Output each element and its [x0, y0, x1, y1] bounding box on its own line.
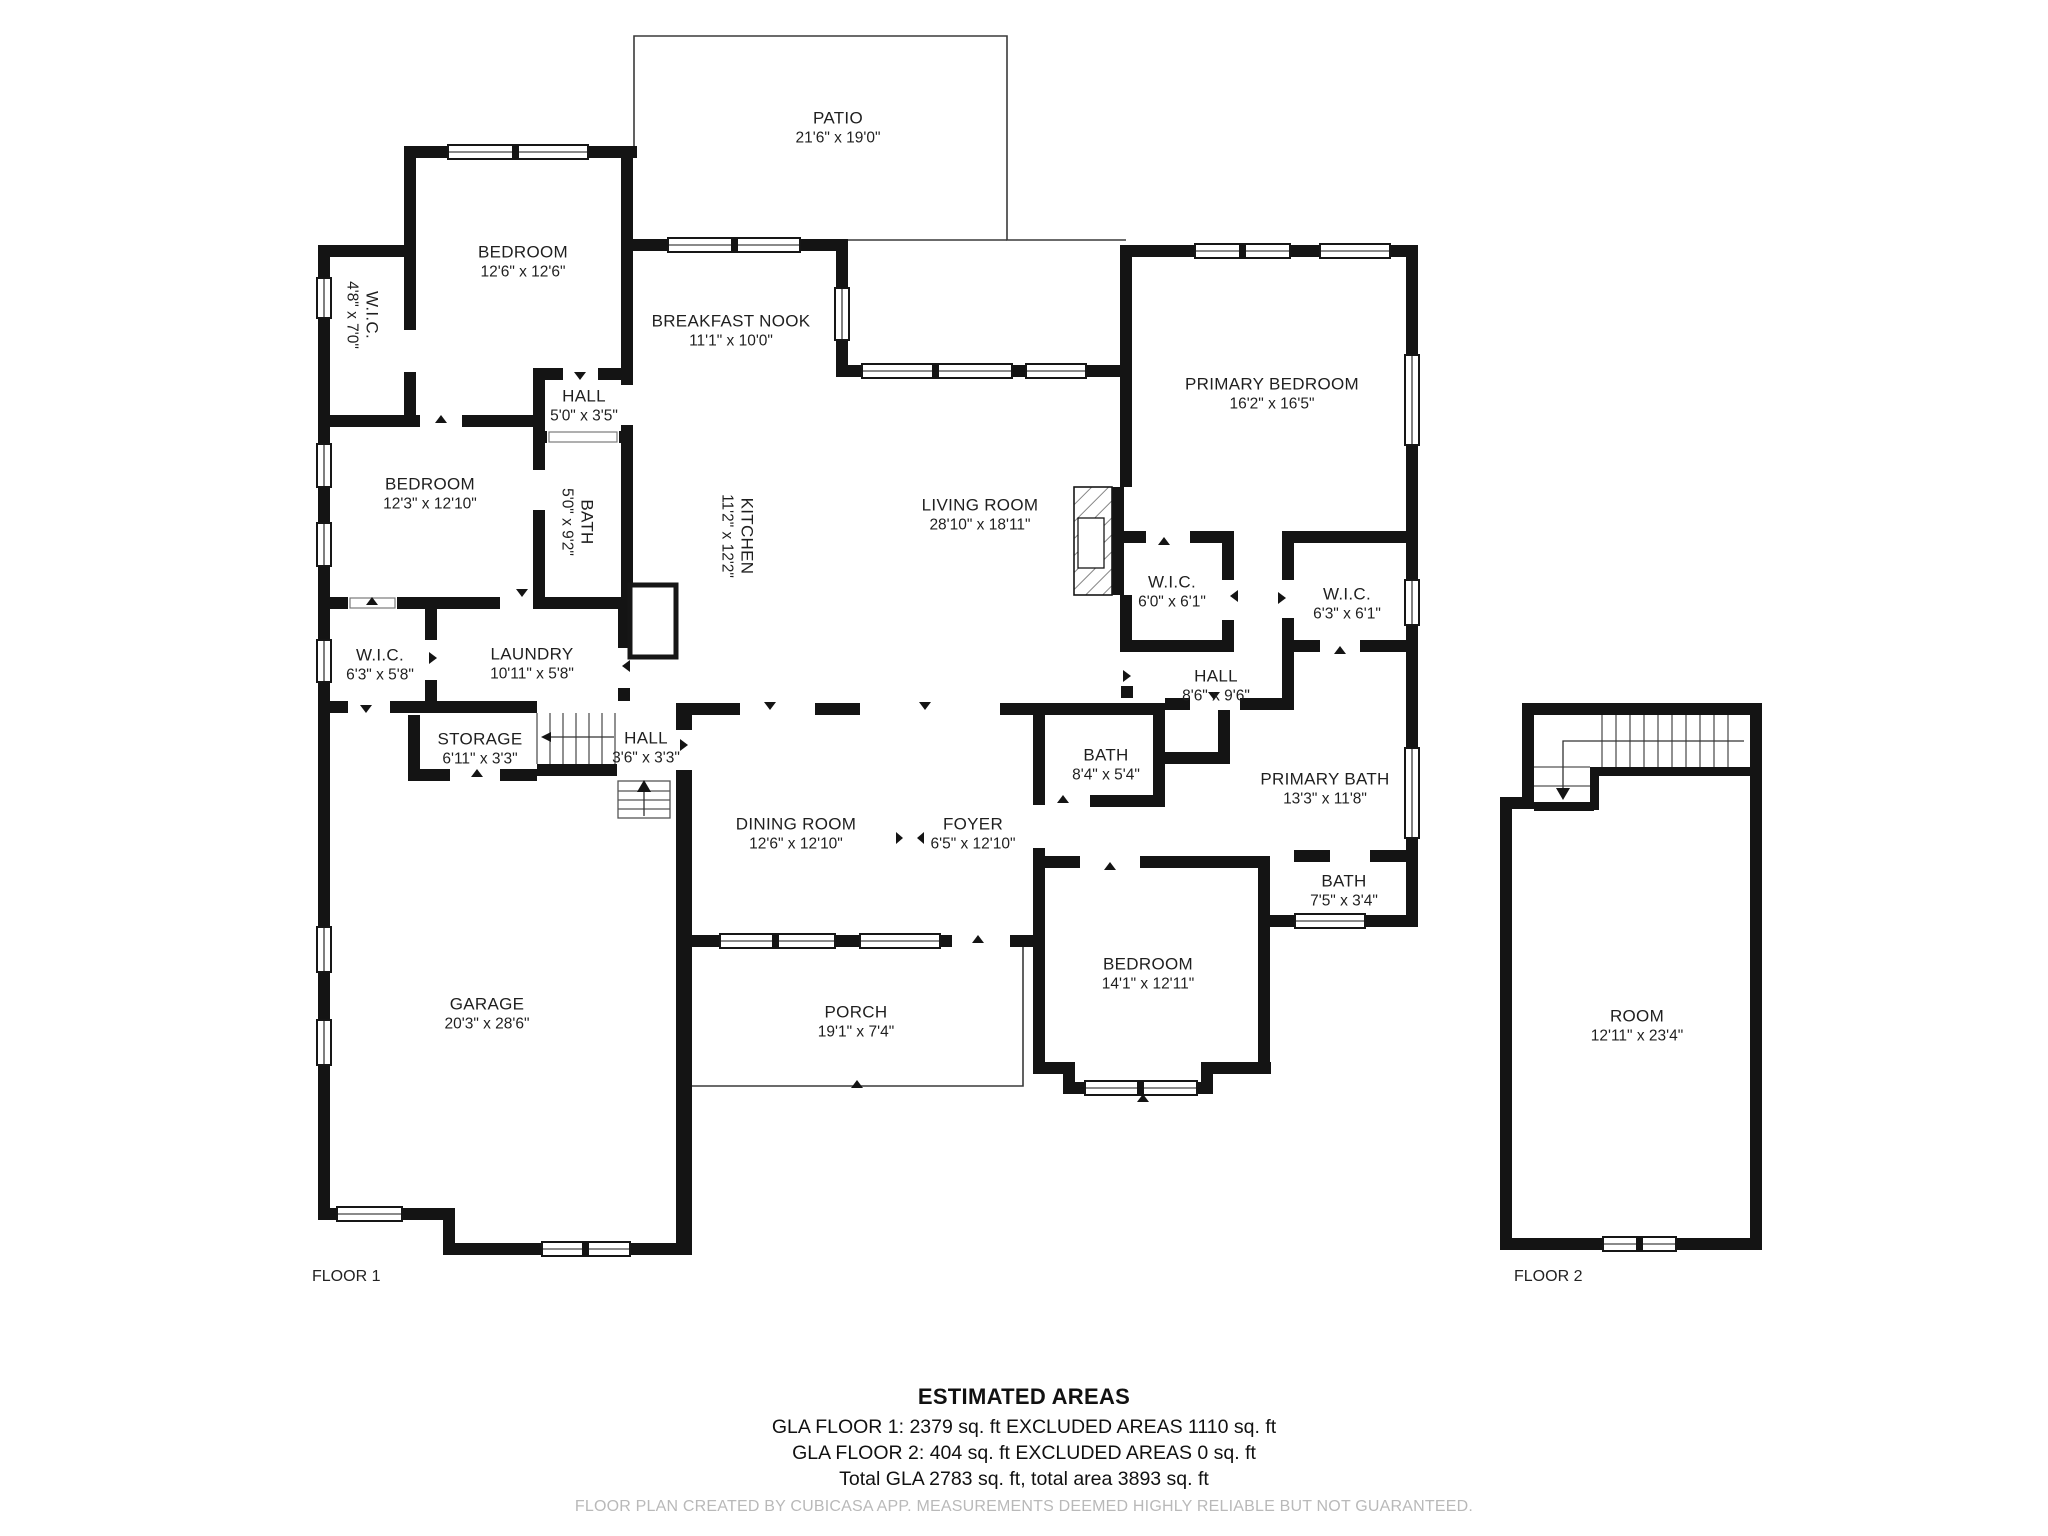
fireplace — [1074, 487, 1112, 595]
room-label-bath-3: BATH7'5" x 3'4" — [1310, 871, 1378, 912]
room-label-wic-3: W.I.C.6'3" x 6'1" — [1313, 584, 1381, 625]
disclaimer-note: FLOOR PLAN CREATED BY CUBICASA APP. MEAS… — [0, 1498, 2048, 1516]
room-label-patio: PATIO21'6" x 19'0" — [795, 108, 880, 149]
floor2-stairs — [1534, 715, 1744, 792]
floor-plan-page: PATIO21'6" x 19'0" BEDROOM12'6" x 12'6" … — [0, 0, 2048, 1536]
room-label-hall-1: HALL5'0" x 3'5" — [550, 386, 618, 427]
room-label-bedroom-2: BEDROOM12'3" x 12'10" — [383, 474, 477, 515]
room-label-kitchen: KITCHEN11'2" x 12'2" — [717, 494, 758, 578]
room-label-garage: GARAGE20'3" x 28'6" — [444, 994, 529, 1035]
room-label-wic-4: W.I.C.6'3" x 5'8" — [346, 645, 414, 686]
gla-floor2-line: GLA FLOOR 2: 404 sq. ft EXCLUDED AREAS 0… — [0, 1440, 2048, 1466]
room-label-porch: PORCH19'1" x 7'4" — [818, 1002, 894, 1043]
room-label-bedroom-3: BEDROOM14'1" x 12'11" — [1102, 954, 1194, 995]
floor2-stairs-arrow — [1556, 788, 1570, 800]
kitchen-island — [630, 585, 676, 657]
floor2-label: FLOOR 2 — [1514, 1268, 1582, 1286]
room-label-bath-1: BATH5'0" x 9'2" — [557, 488, 598, 556]
room-label-wic-2: W.I.C.6'0" x 6'1" — [1138, 572, 1206, 613]
floor-plan-drawing — [0, 0, 2048, 1536]
room-label-storage: STORAGE6'11" x 3'3" — [438, 729, 523, 770]
room-label-wic-1: W.I.C.4'8" x 7'0" — [342, 281, 383, 349]
room-label-breakfast-nook: BREAKFAST NOOK11'1" x 10'0" — [652, 311, 811, 352]
room-label-bath-2: BATH8'4" x 5'4" — [1072, 745, 1140, 786]
estimated-areas-heading: ESTIMATED AREAS — [0, 1384, 2048, 1410]
floor1-label: FLOOR 1 — [312, 1268, 380, 1286]
room-label-bedroom-1: BEDROOM12'6" x 12'6" — [478, 242, 568, 283]
floor2-walls — [1500, 703, 1762, 1250]
room-label-room-f2: ROOM12'11" x 23'4" — [1591, 1006, 1683, 1047]
room-label-primary-bedroom: PRIMARY BEDROOM16'2" x 16'5" — [1185, 374, 1359, 415]
gla-floor1-line: GLA FLOOR 1: 2379 sq. ft EXCLUDED AREAS … — [0, 1414, 2048, 1440]
gla-total-line: Total GLA 2783 sq. ft, total area 3893 s… — [0, 1466, 2048, 1492]
window-midlines — [324, 152, 1676, 1249]
room-label-foyer: FOYER6'5" x 12'10" — [930, 814, 1015, 855]
windows — [317, 145, 1676, 1256]
room-label-hall-2: HALL8'6" x 9'6" — [1182, 666, 1250, 707]
room-label-dining-room: DINING ROOM12'6" x 12'10" — [736, 814, 856, 855]
room-label-primary-bath: PRIMARY BATH13'3" x 11'8" — [1260, 769, 1389, 810]
room-label-living-room: LIVING ROOM28'10" x 18'11" — [922, 495, 1039, 536]
room-label-hall-3: HALL3'6" x 3'3" — [612, 728, 680, 769]
floor1-walls — [318, 146, 1418, 1255]
estimated-areas-block: ESTIMATED AREAS GLA FLOOR 1: 2379 sq. ft… — [0, 1384, 2048, 1492]
room-label-laundry: LAUNDRY10'11" x 5'8" — [490, 644, 574, 685]
